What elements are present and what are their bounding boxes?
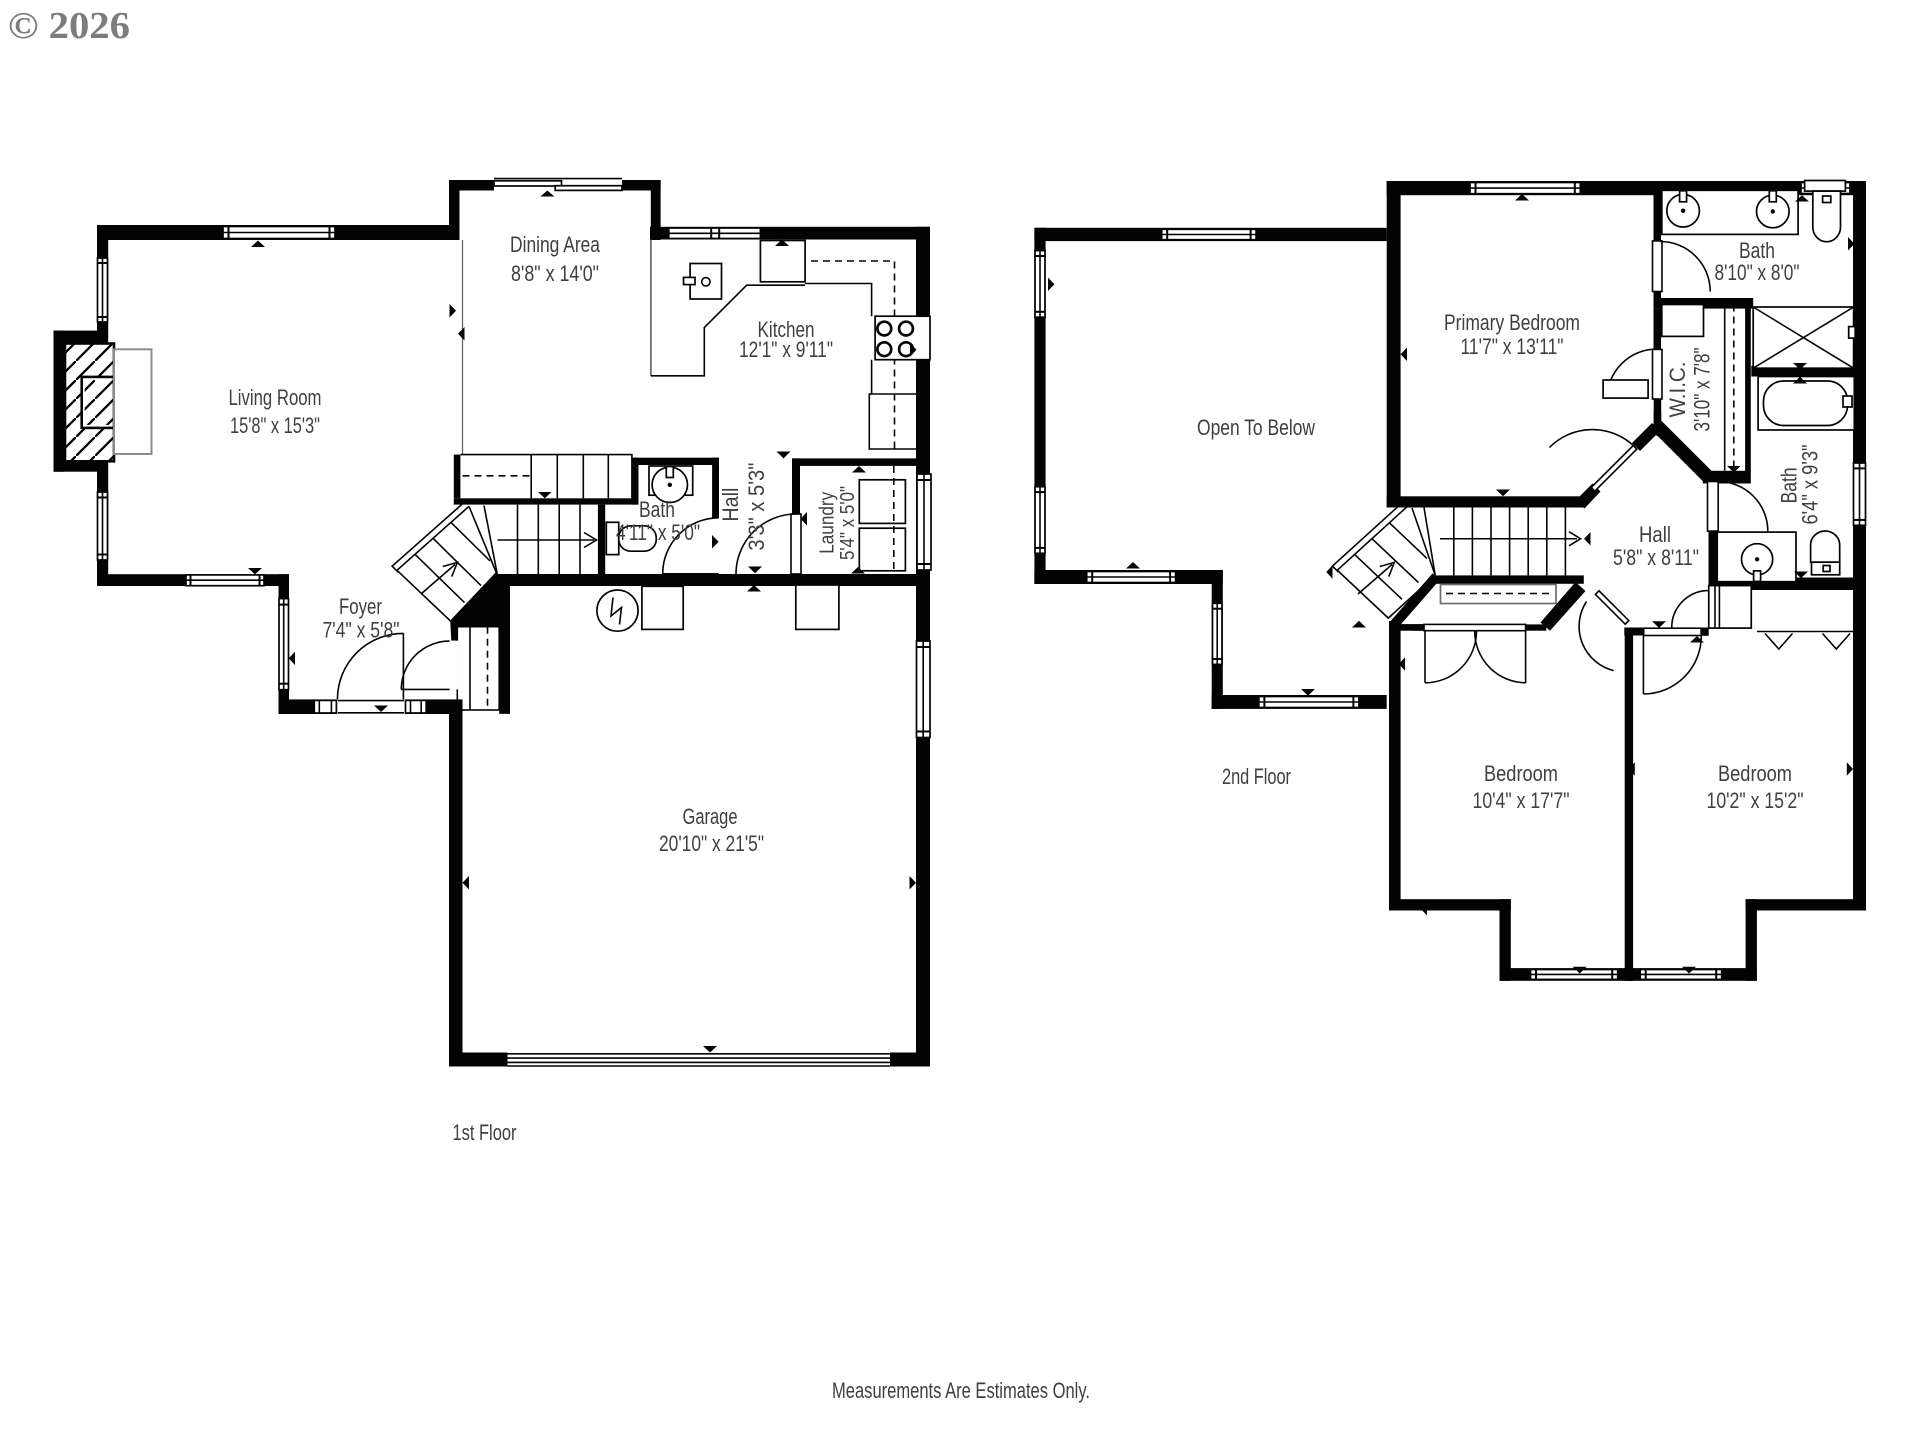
svg-text:Living Room: Living Room — [229, 385, 322, 410]
svg-text:Hall: Hall — [718, 488, 743, 522]
svg-text:Bath: Bath — [639, 497, 675, 522]
svg-text:8'8" x 14'0": 8'8" x 14'0" — [511, 261, 599, 286]
svg-text:2nd Floor: 2nd Floor — [1222, 764, 1291, 789]
svg-text:Measurements Are Estimates Onl: Measurements Are Estimates Only. — [832, 1378, 1090, 1403]
svg-text:Foyer: Foyer — [339, 594, 382, 619]
svg-text:20'10" x 21'5": 20'10" x 21'5" — [659, 831, 764, 856]
svg-text:1st Floor: 1st Floor — [453, 1120, 517, 1145]
svg-text:15'8" x 15'3": 15'8" x 15'3" — [230, 413, 320, 438]
svg-text:Primary Bedroom: Primary Bedroom — [1444, 310, 1580, 335]
svg-text:Bedroom: Bedroom — [1718, 761, 1792, 786]
svg-text:Dining Area: Dining Area — [510, 232, 601, 257]
svg-text:8'10" x 8'0": 8'10" x 8'0" — [1715, 260, 1800, 285]
svg-text:3'10" x 7'8": 3'10" x 7'8" — [1690, 348, 1715, 432]
svg-text:Bedroom: Bedroom — [1484, 761, 1558, 786]
svg-text:5'4" x 5'0": 5'4" x 5'0" — [837, 486, 859, 560]
svg-text:Laundry: Laundry — [817, 492, 839, 554]
svg-text:Open To Below: Open To Below — [1197, 415, 1315, 440]
svg-text:© 2026: © 2026 — [8, 5, 130, 47]
svg-text:W.I.C.: W.I.C. — [1665, 362, 1690, 418]
svg-text:4'11" x 5'0": 4'11" x 5'0" — [616, 520, 700, 545]
svg-text:6'4" x 9'3": 6'4" x 9'3" — [1798, 445, 1823, 525]
svg-text:10'2" x 15'2": 10'2" x 15'2" — [1707, 788, 1804, 813]
svg-text:12'1" x 9'11": 12'1" x 9'11" — [739, 337, 833, 362]
svg-text:Hall: Hall — [1639, 522, 1671, 547]
svg-text:11'7" x 13'11": 11'7" x 13'11" — [1461, 334, 1564, 359]
svg-text:3'3" x 5'3": 3'3" x 5'3" — [744, 463, 769, 551]
svg-text:5'8" x 8'11": 5'8" x 8'11" — [1613, 545, 1699, 570]
svg-text:7'4" x 5'8": 7'4" x 5'8" — [323, 618, 400, 643]
svg-text:Garage: Garage — [683, 804, 738, 829]
svg-text:10'4" x 17'7": 10'4" x 17'7" — [1473, 788, 1570, 813]
